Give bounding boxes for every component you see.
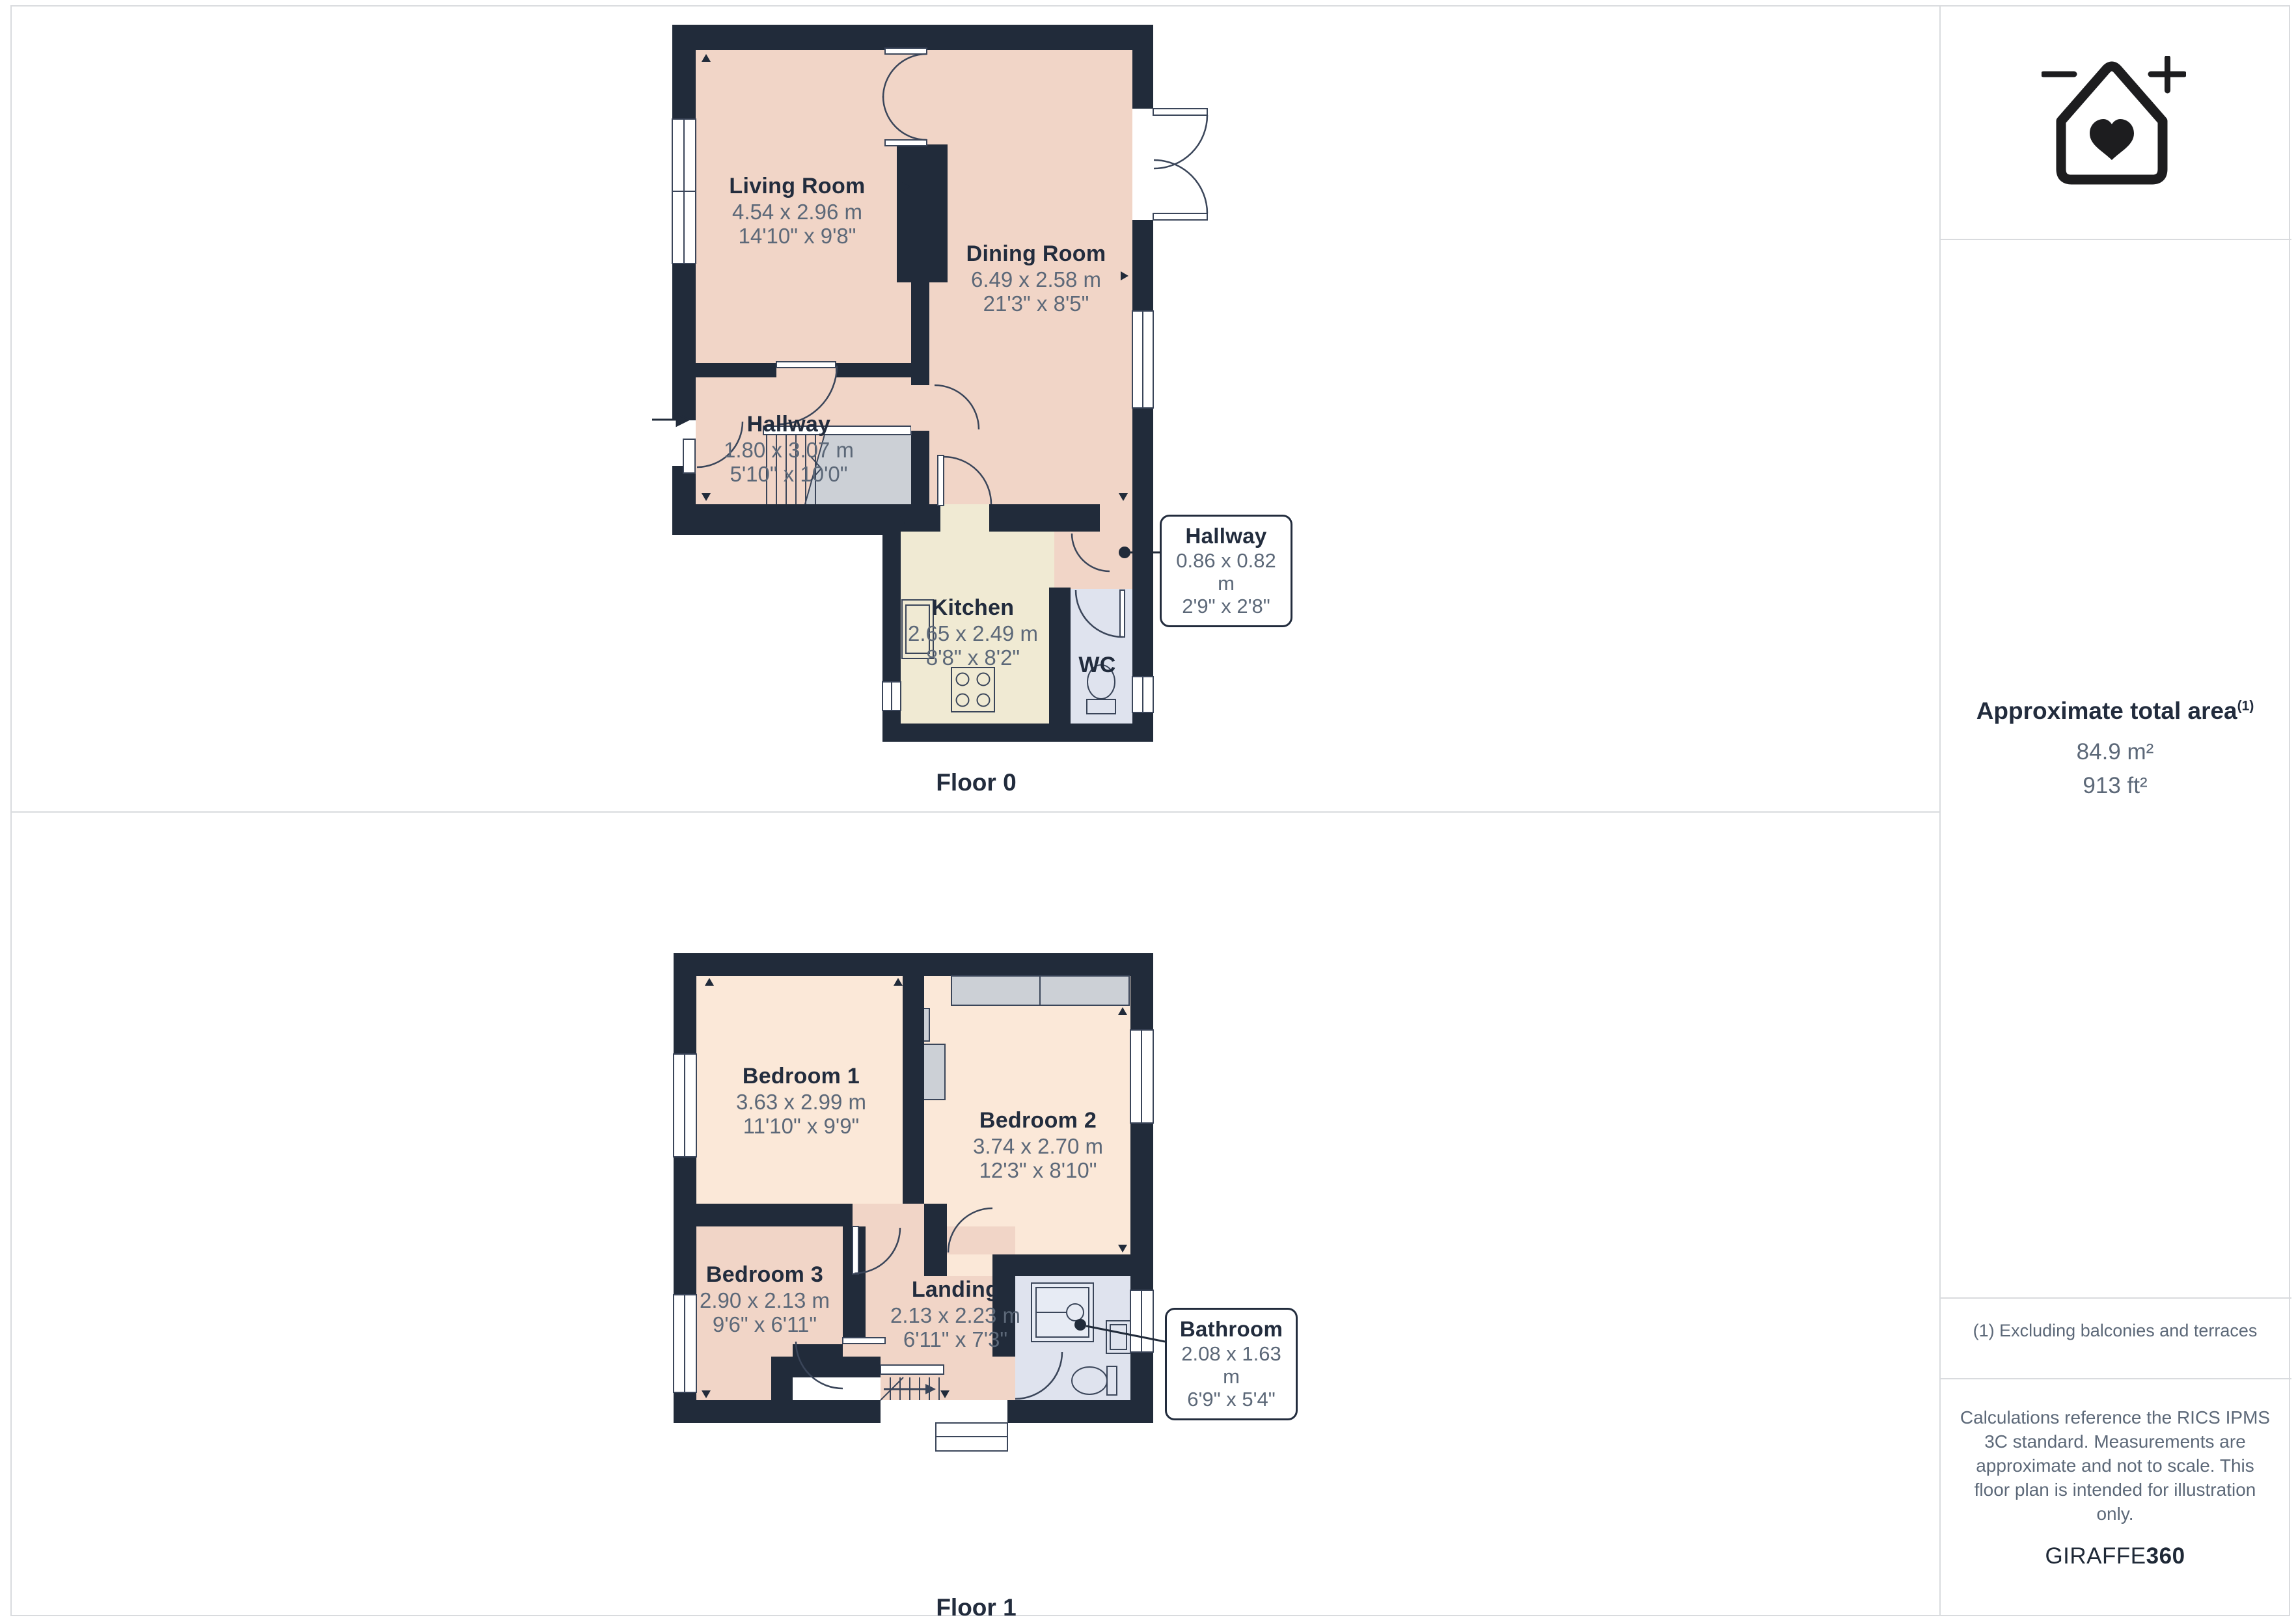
- house-outline: [2061, 66, 2163, 180]
- label-living-room: Living Room 4.54 x 2.96 m 14'10" x 9'8": [729, 173, 865, 248]
- total-area-m2: 84.9 m²: [2077, 739, 2154, 765]
- callout-hallway: Hallway 0.86 x 0.82 m 2'9" x 2'8": [1160, 515, 1292, 627]
- sidebar-divider: [1939, 5, 1941, 1616]
- floor0-label: Floor 0: [936, 769, 1016, 796]
- label-bedroom2: Bedroom 2 3.74 x 2.70 m 12'3" x 8'10": [973, 1107, 1103, 1182]
- sidebar-divider-disclaimer: [1939, 1378, 2291, 1379]
- disclaimer-text: Calculations reference the RICS IPMS 3C …: [1960, 1405, 2271, 1526]
- label-dining-room: Dining Room 6.49 x 2.58 m 21'3" x 8'5": [966, 241, 1106, 316]
- footnote-marker: (1): [2237, 699, 2254, 714]
- giraffe360-logo: GIRAFFE360: [2045, 1543, 2185, 1569]
- area-footnote: (1) Excluding balconies and terraces: [1973, 1321, 2258, 1341]
- floor-section-divider: [10, 811, 1939, 813]
- stove: [951, 668, 994, 712]
- sidebar-divider-footnote: [1939, 1297, 2291, 1299]
- label-bedroom3: Bedroom 3 2.90 x 2.13 m 9'6" x 6'11": [700, 1262, 830, 1336]
- approximate-total-area-title: Approximate total area(1): [1976, 697, 2254, 725]
- floor1-b2-door-gap: [947, 1254, 992, 1276]
- label-bedroom1: Bedroom 1 3.63 x 2.99 m 11'10" x 9'9": [736, 1063, 866, 1138]
- label-kitchen: Kitchen 2.65 x 2.49 m 8'8" x 8'2": [908, 595, 1038, 670]
- small-hallway-floor: [1054, 532, 1132, 589]
- label-hallway: Hallway 1.80 x 3.07 m 5'10" x 10'0": [724, 411, 854, 486]
- label-wc: WC: [1078, 652, 1115, 679]
- label-landing: Landing 2.13 x 2.23 m 6'11" x 7'3": [890, 1277, 1020, 1351]
- total-area-ft2: 913 ft²: [2083, 773, 2147, 799]
- callout-bathroom: Bathroom 2.08 x 1.63 m 6'9" x 5'4": [1165, 1308, 1298, 1420]
- sidebar-divider-top: [1939, 239, 2291, 240]
- house-with-heart-zoom-icon: [2042, 56, 2186, 194]
- heart-icon: [2090, 119, 2134, 160]
- floor1-label: Floor 1: [936, 1594, 1016, 1621]
- floorplan-page: { "floors": [ { "label": "Floor 0", "roo…: [0, 0, 2296, 1624]
